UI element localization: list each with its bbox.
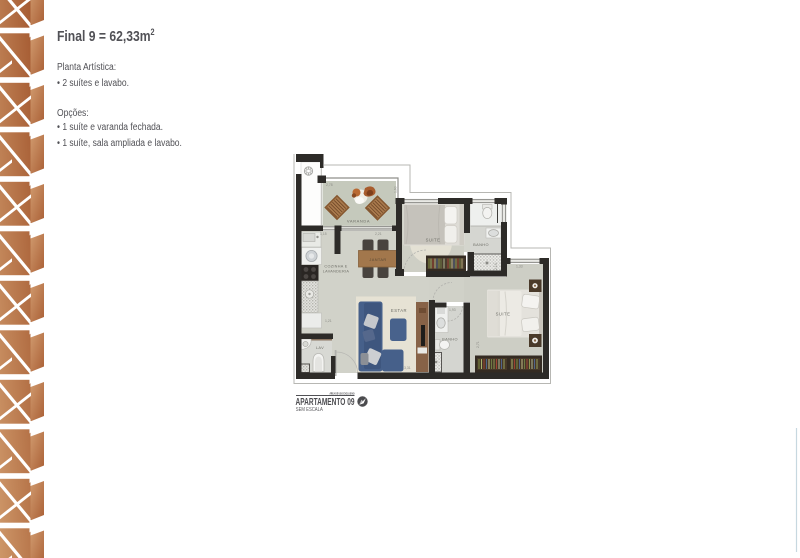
svg-text:SUITE: SUITE — [426, 238, 441, 243]
svg-text:2,21: 2,21 — [375, 232, 382, 236]
svg-text:1,21: 1,21 — [325, 319, 332, 323]
svg-text:SEM ESCALA: SEM ESCALA — [296, 407, 324, 413]
svg-text:ÁREA DE USO EXCLUSIVO: ÁREA DE USO EXCLUSIVO — [330, 390, 355, 395]
svg-text:LAV: LAV — [316, 345, 324, 350]
svg-text:SUITE: SUITE — [496, 312, 511, 317]
svg-text:LAVANDERIA: LAVANDERIA — [323, 270, 350, 274]
svg-text:1,93: 1,93 — [449, 308, 456, 312]
svg-text:2,19: 2,19 — [494, 263, 498, 270]
svg-text:COZINHA E: COZINHA E — [324, 265, 347, 269]
svg-text:2,71: 2,71 — [476, 341, 480, 348]
svg-text:1,15: 1,15 — [320, 232, 327, 236]
svg-text:3,31: 3,31 — [404, 366, 411, 370]
svg-text:ESTAR: ESTAR — [391, 308, 407, 313]
svg-text:JANTAR: JANTAR — [369, 257, 386, 262]
svg-text:1,60: 1,60 — [394, 186, 398, 193]
svg-text:BANHO: BANHO — [442, 337, 458, 342]
svg-text:1,33: 1,33 — [516, 265, 523, 269]
svg-text:BANHO: BANHO — [473, 242, 489, 247]
svg-text:VARANDA: VARANDA — [347, 219, 370, 224]
svg-text:2,78: 2,78 — [326, 183, 333, 187]
